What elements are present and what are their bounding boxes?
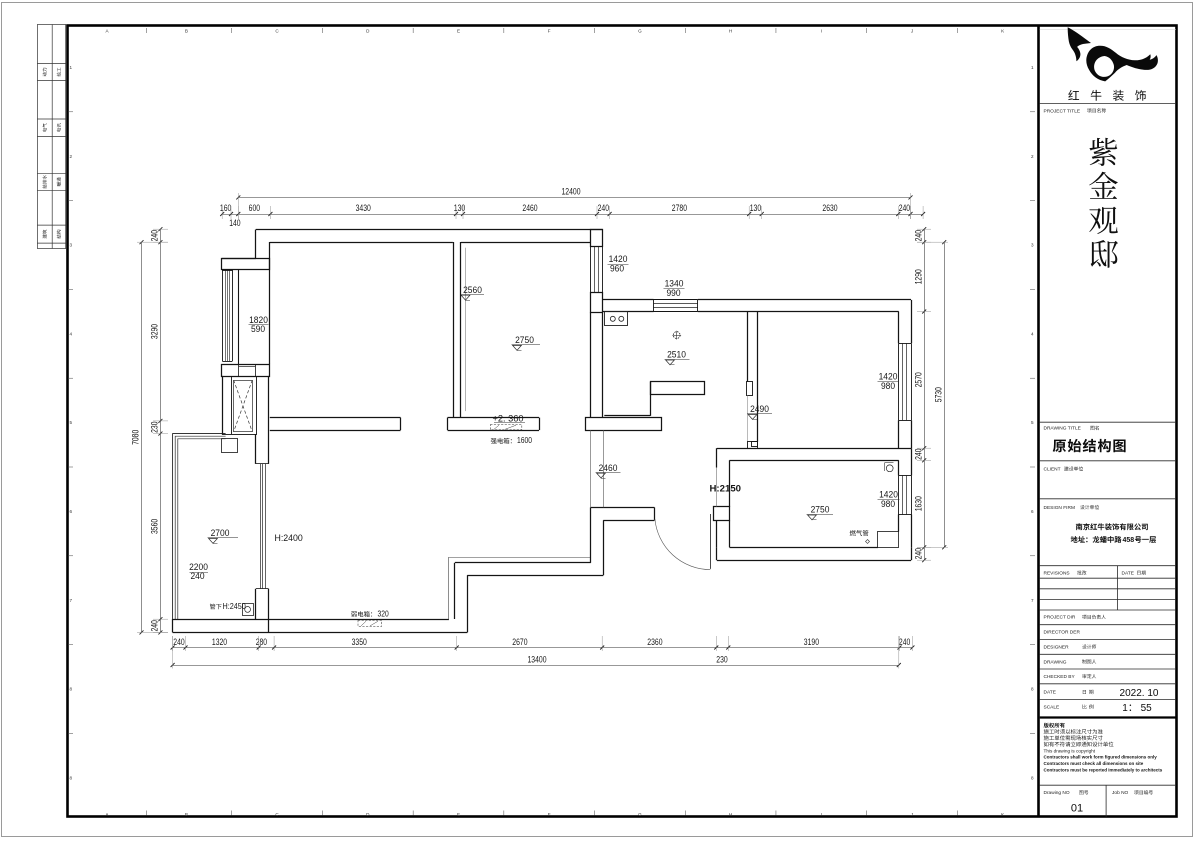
svg-text:H: H bbox=[729, 812, 732, 817]
svg-text:230: 230 bbox=[716, 655, 727, 665]
svg-text:DRAWING: DRAWING bbox=[1044, 659, 1067, 665]
svg-text:458: 458 bbox=[1123, 537, 1135, 544]
svg-text:01: 01 bbox=[1071, 803, 1083, 815]
svg-text:3190: 3190 bbox=[804, 637, 819, 647]
svg-text:2780: 2780 bbox=[672, 203, 687, 213]
svg-text:DIRECTOR DER: DIRECTOR DER bbox=[1044, 630, 1081, 636]
svg-text:130: 130 bbox=[454, 203, 465, 213]
svg-text:1630: 1630 bbox=[913, 496, 923, 511]
svg-text:3430: 3430 bbox=[356, 203, 371, 213]
svg-text:4: 4 bbox=[1031, 331, 1034, 336]
svg-text:5: 5 bbox=[70, 420, 73, 425]
svg-text:1: 1 bbox=[70, 65, 73, 70]
svg-text:3: 3 bbox=[1031, 243, 1034, 248]
svg-text:7: 7 bbox=[1031, 598, 1034, 603]
svg-text:13400: 13400 bbox=[528, 655, 547, 665]
svg-text:CLIENT: CLIENT bbox=[1044, 467, 1061, 473]
svg-text:Job NO: Job NO bbox=[1112, 790, 1129, 796]
svg-text:2: 2 bbox=[1031, 154, 1034, 159]
svg-text:DESIGNER: DESIGNER bbox=[1044, 645, 1070, 651]
svg-text:F: F bbox=[548, 29, 551, 34]
svg-text:140: 140 bbox=[229, 218, 240, 228]
svg-text:H: H bbox=[729, 29, 732, 34]
svg-text:3290: 3290 bbox=[149, 324, 159, 339]
svg-text:2510: 2510 bbox=[667, 350, 686, 361]
svg-text:1： 55: 1： 55 bbox=[1122, 703, 1152, 714]
svg-text:240: 240 bbox=[913, 449, 923, 460]
svg-text:1: 1 bbox=[1031, 65, 1034, 70]
svg-text:990: 990 bbox=[666, 288, 680, 299]
svg-text:5730: 5730 bbox=[933, 387, 943, 402]
svg-text:8: 8 bbox=[1031, 687, 1034, 692]
svg-text:8: 8 bbox=[70, 775, 73, 780]
svg-text:240: 240 bbox=[149, 620, 159, 631]
svg-text:6: 6 bbox=[70, 509, 73, 514]
svg-text:6: 6 bbox=[1031, 509, 1034, 514]
svg-text:2: 2 bbox=[70, 154, 73, 159]
svg-text:2460: 2460 bbox=[522, 203, 537, 213]
svg-text:2570: 2570 bbox=[913, 372, 923, 387]
svg-text:B: B bbox=[185, 812, 188, 817]
svg-text:600: 600 bbox=[249, 203, 260, 213]
svg-text:240: 240 bbox=[190, 571, 204, 582]
svg-text:12400: 12400 bbox=[562, 187, 581, 197]
svg-text:240: 240 bbox=[913, 230, 923, 241]
svg-text:J: J bbox=[911, 812, 913, 817]
svg-text:960: 960 bbox=[610, 264, 624, 275]
svg-text:240: 240 bbox=[173, 637, 184, 647]
svg-text:I: I bbox=[821, 29, 822, 34]
svg-text:2022. 10: 2022. 10 bbox=[1120, 688, 1159, 699]
svg-text:1600: 1600 bbox=[517, 436, 532, 445]
svg-text:REVISIONS: REVISIONS bbox=[1044, 571, 1070, 577]
svg-text:E: E bbox=[457, 29, 460, 34]
svg-text:2630: 2630 bbox=[822, 203, 837, 213]
svg-text:PROJECT DIR: PROJECT DIR bbox=[1044, 615, 1076, 621]
svg-text:H:2150: H:2150 bbox=[710, 482, 742, 493]
svg-text:2460: 2460 bbox=[599, 463, 618, 474]
svg-text:DESIGN FIRM: DESIGN FIRM bbox=[1044, 505, 1075, 511]
svg-text:7: 7 bbox=[70, 598, 73, 603]
svg-text:240: 240 bbox=[598, 203, 609, 213]
svg-text:F: F bbox=[548, 812, 551, 817]
svg-text:8: 8 bbox=[1031, 775, 1034, 780]
svg-text:230: 230 bbox=[149, 422, 159, 433]
svg-text:Drawing NO: Drawing NO bbox=[1044, 790, 1070, 796]
svg-text:130: 130 bbox=[750, 203, 761, 213]
svg-text:160: 160 bbox=[220, 203, 231, 213]
svg-text:CHECKED BY: CHECKED BY bbox=[1044, 674, 1076, 680]
svg-text:E: E bbox=[457, 812, 460, 817]
svg-text:3560: 3560 bbox=[149, 519, 159, 534]
svg-text:3: 3 bbox=[70, 243, 73, 248]
svg-text:240: 240 bbox=[149, 230, 159, 241]
svg-text:DRAWING TITLE: DRAWING TITLE bbox=[1044, 426, 1081, 432]
svg-text:Contractors shall work form fi: Contractors shall work form figured dime… bbox=[1044, 755, 1158, 760]
svg-text:G: G bbox=[638, 29, 642, 34]
svg-text:J: J bbox=[911, 29, 913, 34]
svg-text:Contractors must be reported i: Contractors must be reported immediately… bbox=[1044, 767, 1163, 772]
svg-text:240: 240 bbox=[899, 637, 910, 647]
svg-text:8: 8 bbox=[70, 687, 73, 692]
svg-text:This drawing is copyright: This drawing is copyright bbox=[1044, 748, 1096, 753]
svg-text:DATE: DATE bbox=[1044, 690, 1056, 696]
svg-text:2360: 2360 bbox=[647, 637, 662, 647]
svg-text:H:2450: H:2450 bbox=[223, 602, 247, 611]
svg-text:3350: 3350 bbox=[352, 637, 367, 647]
svg-text:7080: 7080 bbox=[131, 430, 141, 445]
svg-text:I: I bbox=[821, 812, 822, 817]
svg-text:Contractors must check all dim: Contractors must check all dimensions on… bbox=[1044, 761, 1144, 766]
svg-text:280: 280 bbox=[256, 637, 267, 647]
svg-text:320: 320 bbox=[378, 610, 390, 619]
svg-text:980: 980 bbox=[881, 499, 895, 510]
svg-text:G: G bbox=[638, 812, 642, 817]
svg-text:2670: 2670 bbox=[512, 637, 527, 647]
svg-text:1320: 1320 bbox=[212, 637, 227, 647]
svg-text:+2. 360: +2. 360 bbox=[493, 413, 524, 423]
svg-text:240: 240 bbox=[913, 548, 923, 559]
svg-text:590: 590 bbox=[251, 324, 265, 335]
svg-text:980: 980 bbox=[881, 381, 895, 392]
svg-text:4: 4 bbox=[70, 331, 73, 336]
svg-text:H:2400: H:2400 bbox=[275, 532, 303, 543]
svg-text:DATE: DATE bbox=[1122, 571, 1134, 577]
svg-text:5: 5 bbox=[1031, 420, 1034, 425]
svg-text:1290: 1290 bbox=[913, 269, 923, 284]
svg-text:PROJECT TITLE: PROJECT TITLE bbox=[1044, 108, 1081, 114]
svg-text:2750: 2750 bbox=[811, 505, 830, 516]
svg-text:240: 240 bbox=[899, 203, 910, 213]
svg-text:B: B bbox=[185, 29, 188, 34]
svg-text:SCALE: SCALE bbox=[1044, 705, 1060, 711]
